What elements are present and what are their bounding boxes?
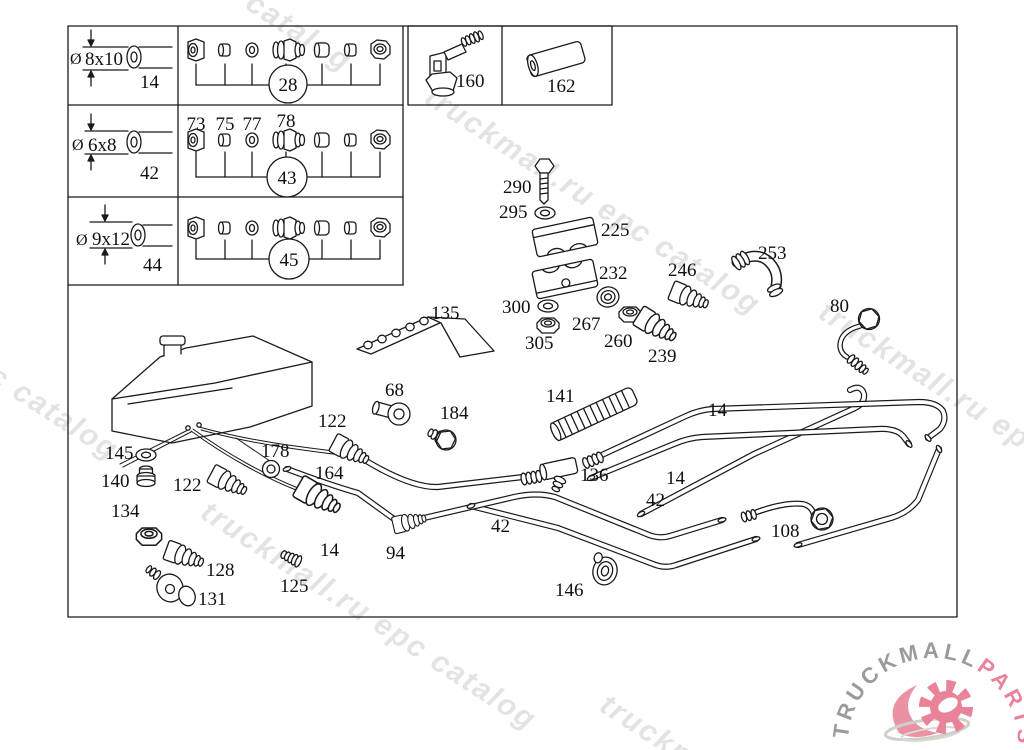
- legend-group-number-45: 45: [280, 250, 299, 271]
- part-label-140: 140: [101, 471, 130, 492]
- part-246-union: [668, 281, 712, 314]
- part-label-80: 80: [830, 296, 849, 317]
- part-225-clamp-upper: [532, 217, 598, 257]
- part-label-122-lower: 122: [173, 475, 202, 496]
- gear-swoosh-icon: [884, 685, 970, 744]
- part-label-135: 135: [431, 303, 460, 324]
- diagram-canvas: Ø 8x10 14 28 Ø: [0, 0, 1024, 750]
- part-label-162: 162: [547, 76, 576, 97]
- part-label-125: 125: [280, 576, 309, 597]
- part-label-300: 300: [502, 297, 531, 318]
- part-label-134: 134: [111, 501, 140, 522]
- part-label-295: 295: [499, 202, 528, 223]
- part-145-washer: [136, 449, 156, 461]
- part-135-bracket: [357, 317, 494, 357]
- part-label-122-upper: 122: [318, 411, 347, 432]
- part-label-290: 290: [503, 177, 532, 198]
- legend-diameter-symbol-1: Ø: [70, 51, 82, 68]
- part-label-160: 160: [456, 71, 485, 92]
- part-134-nut: [136, 528, 161, 545]
- part-label-305: 305: [525, 333, 554, 354]
- truckmall-logo: TRUCKMALLPARTS: [828, 638, 1024, 748]
- part-label-14-b: 14: [666, 468, 686, 489]
- part-label-131: 131: [198, 589, 227, 610]
- part-125-threaded-stud: [279, 548, 303, 568]
- part-239-union: [632, 306, 680, 348]
- legend-size-6x8: 6x8: [88, 135, 117, 156]
- part-label-145: 145: [105, 443, 134, 464]
- part-162-sleeve: [526, 41, 586, 78]
- part-label-184: 184: [440, 403, 469, 424]
- legend-size-8x10: 8x10: [85, 49, 123, 70]
- part-94-barb-fitting: [391, 510, 427, 534]
- part-label-232: 232: [599, 263, 628, 284]
- part-68-banjo-union: [371, 401, 410, 425]
- legend-qty-44: 44: [143, 255, 163, 276]
- part-label-136: 136: [580, 465, 609, 486]
- part-label-128: 128: [206, 560, 235, 581]
- part-label-239: 239: [648, 346, 677, 367]
- part-146-grommet: [588, 552, 621, 588]
- legend-size-9x12: 9x12: [92, 229, 130, 250]
- part-label-108: 108: [771, 521, 800, 542]
- part-label-68: 68: [385, 380, 404, 401]
- part-178-grommet: [263, 461, 280, 478]
- part-label-146: 146: [555, 580, 584, 601]
- part-232-clamp-lower: [532, 259, 598, 299]
- legend-diameter-symbol-3: Ø: [76, 232, 88, 249]
- legend-group-number-28: 28: [279, 75, 298, 96]
- part-122-union-lower: [207, 464, 251, 500]
- legend-qty-14: 14: [140, 72, 160, 93]
- part-267-ring: [595, 284, 621, 309]
- legend-item-77: 77: [243, 114, 262, 135]
- legend-item-75: 75: [216, 114, 235, 135]
- parts-diagram-page: catalog truckmall.ru epc catalog truckma…: [0, 0, 1024, 750]
- part-label-225: 225: [601, 220, 630, 241]
- part-295-washer: [535, 207, 555, 219]
- part-label-94: 94: [386, 543, 406, 564]
- part-label-267: 267: [572, 314, 601, 335]
- part-305-nut: [537, 318, 559, 333]
- part-128-union: [163, 540, 207, 572]
- part-label-164: 164: [315, 463, 344, 484]
- part-label-14-c: 14: [320, 540, 340, 561]
- part-label-14-a: 14: [708, 400, 728, 421]
- legend-diameter-symbol-2: Ø: [72, 137, 84, 154]
- part-label-141: 141: [546, 386, 575, 407]
- part-label-246: 246: [668, 260, 697, 281]
- part-label-260: 260: [604, 331, 633, 352]
- part-label-178: 178: [261, 441, 290, 462]
- part-300-washer: [538, 300, 558, 312]
- part-label-42-a: 42: [646, 490, 665, 511]
- part-131-elbow-union: [144, 564, 198, 608]
- legend-item-78: 78: [277, 111, 296, 132]
- part-140-cap-plug: [137, 466, 155, 487]
- part-label-253: 253: [758, 243, 787, 264]
- part-290-bolt: [535, 159, 554, 204]
- part-184-plug-bolt: [424, 423, 459, 453]
- legend-group-number-43: 43: [278, 168, 297, 189]
- legend-qty-42: 42: [140, 163, 159, 184]
- reservoir-tank: [112, 336, 312, 443]
- part-label-42-b: 42: [491, 516, 510, 537]
